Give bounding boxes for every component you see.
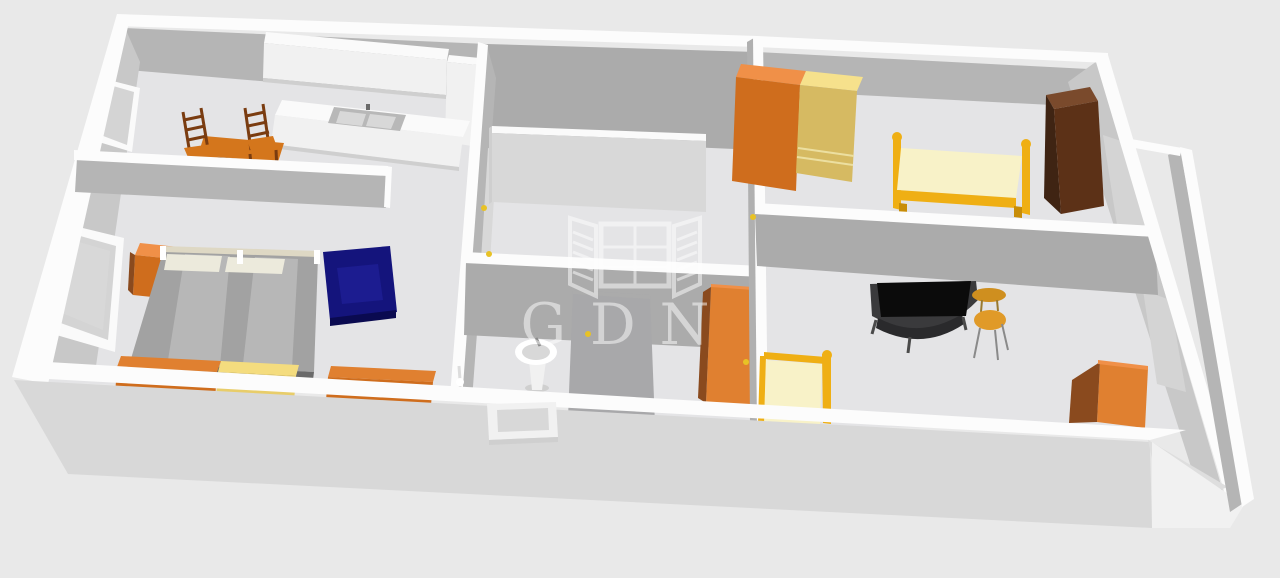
navy-armchair: [323, 246, 397, 326]
brown-wardrobe: [1044, 87, 1104, 214]
floorplan-3d-render: GDN: [0, 0, 1280, 578]
bed-post: [314, 250, 320, 264]
watermark-text: GDN: [520, 292, 733, 358]
bed-post: [160, 246, 166, 260]
bed-post: [237, 250, 243, 264]
front-wall-vent: [487, 402, 558, 445]
faucet: [366, 104, 370, 110]
hall-partition: [489, 126, 706, 212]
desk-leg: [908, 337, 910, 353]
floorplan-viewport: GDN: [0, 0, 1280, 578]
orange-wardrobe: [732, 64, 806, 191]
